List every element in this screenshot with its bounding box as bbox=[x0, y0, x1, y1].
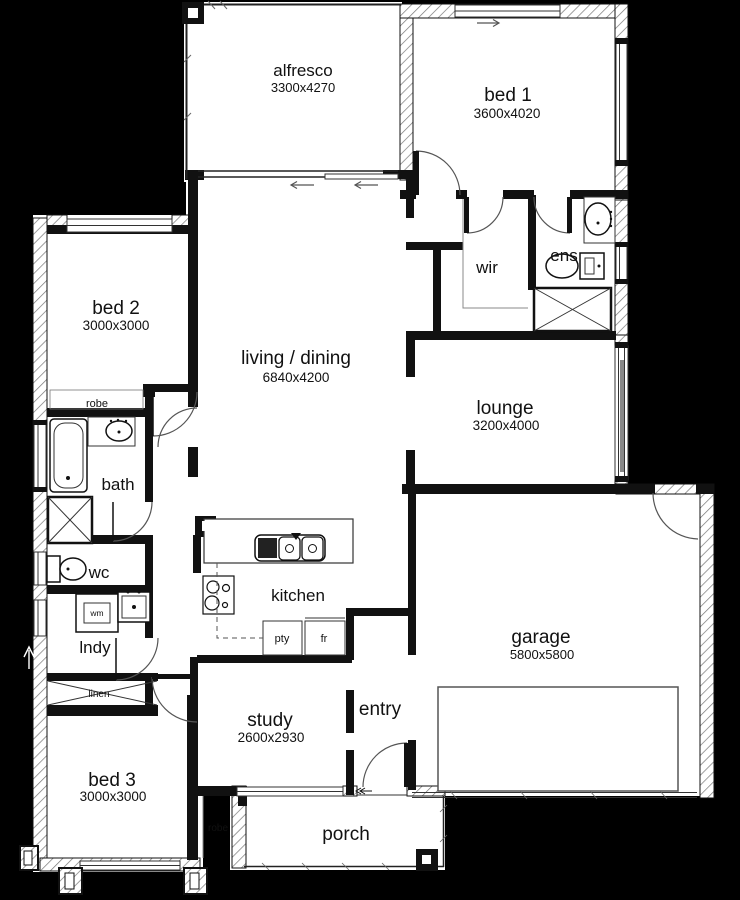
room-label-wir: wir bbox=[475, 258, 498, 277]
room-label-living-dining: living / dining bbox=[241, 348, 351, 369]
room-label-garage: garage bbox=[511, 627, 570, 648]
bed3-door-leaf bbox=[152, 674, 197, 679]
room-label-alfresco: alfresco bbox=[273, 61, 333, 80]
room-dims-bed1: 3600x4020 bbox=[474, 106, 541, 121]
room-label-lounge: lounge bbox=[476, 398, 533, 419]
ens-basin bbox=[584, 197, 615, 243]
ens-door-leaf bbox=[567, 197, 572, 233]
room-label-bed3: bed 3 bbox=[88, 770, 136, 791]
floorplan-drawing: alfresco 3300x4270 bed 1 3600x4020 wir e… bbox=[0, 0, 740, 900]
label-washing-machine: wm bbox=[89, 608, 103, 618]
room-dims-alfresco: 3300x4270 bbox=[271, 80, 335, 95]
laundry-window bbox=[34, 600, 46, 636]
room-dims-lounge: 3200x4000 bbox=[473, 418, 540, 433]
room-label-wc: wc bbox=[88, 563, 110, 582]
bed3-window bbox=[80, 861, 180, 870]
floorplan-page: alfresco 3300x4270 bed 1 3600x4020 wir e… bbox=[0, 0, 740, 900]
room-label-study: study bbox=[247, 710, 293, 731]
room-label-robe-bed2: robe bbox=[86, 398, 108, 410]
room-dims-bed3: 3000x3000 bbox=[80, 789, 147, 804]
wir-door-leaf bbox=[464, 197, 469, 233]
cooktop bbox=[203, 576, 234, 614]
bath-shower bbox=[48, 497, 92, 543]
bed1-side-window bbox=[615, 38, 628, 166]
front-door-leaf bbox=[404, 743, 410, 787]
bathtub bbox=[50, 419, 87, 492]
room-label-bath: bath bbox=[101, 475, 134, 494]
room-label-pantry: pty bbox=[275, 633, 290, 645]
wc-window bbox=[34, 552, 46, 585]
room-label-ens: ens bbox=[550, 246, 577, 265]
ens-window bbox=[615, 242, 628, 284]
bed1-top-window bbox=[455, 5, 560, 17]
kitchen-island bbox=[204, 519, 353, 563]
room-label-kitchen: kitchen bbox=[271, 586, 325, 605]
bath-basin bbox=[88, 417, 135, 446]
room-label-fridge: fr bbox=[321, 633, 328, 645]
room-label-bed2: bed 2 bbox=[92, 298, 140, 319]
room-label-porch: porch bbox=[322, 824, 370, 845]
kitchen-post-notch bbox=[202, 521, 211, 531]
wc-toilet bbox=[47, 556, 86, 582]
bed1-door-leaf bbox=[413, 151, 419, 195]
room-label-entry: entry bbox=[359, 699, 402, 720]
bed2-window bbox=[67, 219, 172, 232]
room-label-bed1: bed 1 bbox=[484, 85, 532, 106]
room-label-laundry: lndy bbox=[79, 638, 111, 657]
laundry-tub bbox=[118, 591, 150, 623]
garage-door bbox=[412, 687, 697, 799]
study-window bbox=[237, 787, 343, 796]
room-label-robe-bed3: robe bbox=[208, 823, 228, 834]
room-dims-living-dining: 6840x4200 bbox=[263, 370, 330, 385]
room-label-linen: linen bbox=[88, 689, 109, 700]
room-dims-garage: 5800x5800 bbox=[510, 647, 574, 662]
ens-shower bbox=[534, 288, 611, 331]
lounge-sliding-door bbox=[615, 342, 628, 482]
room-dims-bed2: 3000x3000 bbox=[83, 318, 150, 333]
bath-window bbox=[33, 420, 47, 492]
room-dims-study: 2600x2930 bbox=[238, 730, 305, 745]
